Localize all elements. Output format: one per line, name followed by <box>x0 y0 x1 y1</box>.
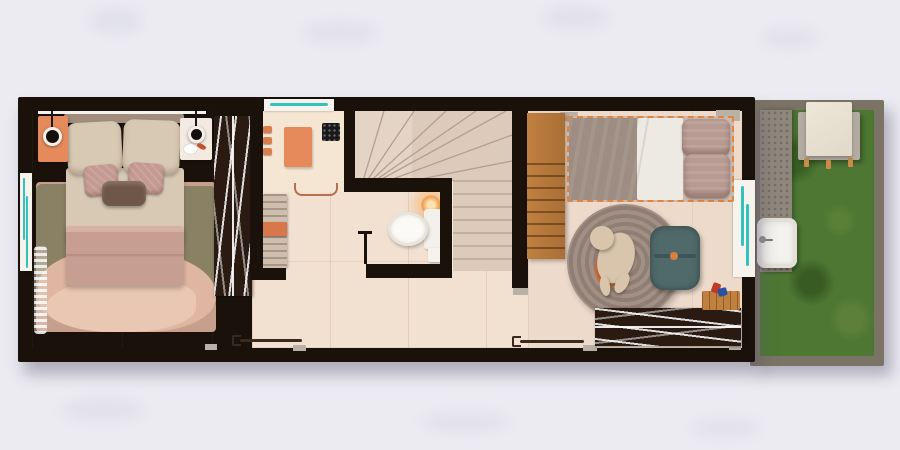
wooden-wardrobe <box>527 113 565 259</box>
shower-drain <box>322 123 340 141</box>
floorplan-canvas <box>0 0 900 450</box>
marble-blob <box>540 6 610 30</box>
teal-pouf <box>650 226 700 290</box>
bolster-cushion <box>102 181 146 206</box>
table-leg <box>826 160 831 169</box>
sliding-door-master <box>240 339 302 342</box>
marble-blob <box>300 22 380 44</box>
toiletry-shelf-item <box>263 126 272 133</box>
rug-pink-wave-light <box>46 278 196 332</box>
bed-blanket <box>66 226 184 286</box>
wardrobe-hanger-closet <box>214 116 252 296</box>
pendant-lamp-left <box>43 127 62 146</box>
kids-pillow <box>682 119 730 156</box>
laundry-sink <box>757 218 797 268</box>
pouf-buckle <box>670 252 678 260</box>
plush-toy-head <box>590 226 614 250</box>
kids-pillow <box>684 154 730 198</box>
marble-blob <box>760 28 820 48</box>
table-leg <box>848 158 853 167</box>
sliding-door-hall <box>520 340 584 343</box>
towel-bar <box>294 183 338 196</box>
sink-faucet <box>759 236 766 243</box>
marble-blob <box>60 398 146 422</box>
window-kids-glass <box>746 204 749 266</box>
single-bed-blanket <box>569 118 639 200</box>
window-kids-right <box>733 180 755 277</box>
orange-towel <box>263 222 287 236</box>
bath-mat <box>284 127 312 167</box>
decor-plate <box>184 144 197 154</box>
door-stop <box>205 344 217 350</box>
door-stop <box>293 345 306 351</box>
window-master-glass <box>26 196 28 268</box>
wall-corridor-stub <box>250 268 286 280</box>
threshold-kids-door <box>513 288 528 295</box>
pendant-lamp-right <box>188 126 205 143</box>
window-bathroom-glass <box>270 103 328 106</box>
table-leg <box>804 158 809 167</box>
wall-master-hall <box>250 111 263 278</box>
window-master-glass <box>23 178 25 240</box>
marble-blob <box>420 412 510 432</box>
wardrobe-shelves <box>527 163 565 259</box>
window-kids-glass <box>741 186 744 246</box>
wall-toilet-top <box>350 178 452 192</box>
single-bed-sheet <box>637 118 683 200</box>
toiletry-shelf-item <box>263 148 272 155</box>
garden-table-top <box>806 102 852 156</box>
sheer-curtain <box>34 246 47 334</box>
wall-toilet-right <box>440 178 452 270</box>
wall-toilet-bottom <box>366 264 452 278</box>
toiletry-shelf-item <box>263 137 272 144</box>
marble-blob <box>88 8 144 34</box>
hanger-rug <box>595 308 741 346</box>
marble-blob <box>690 418 760 438</box>
wall-stairs-kids <box>512 111 528 288</box>
